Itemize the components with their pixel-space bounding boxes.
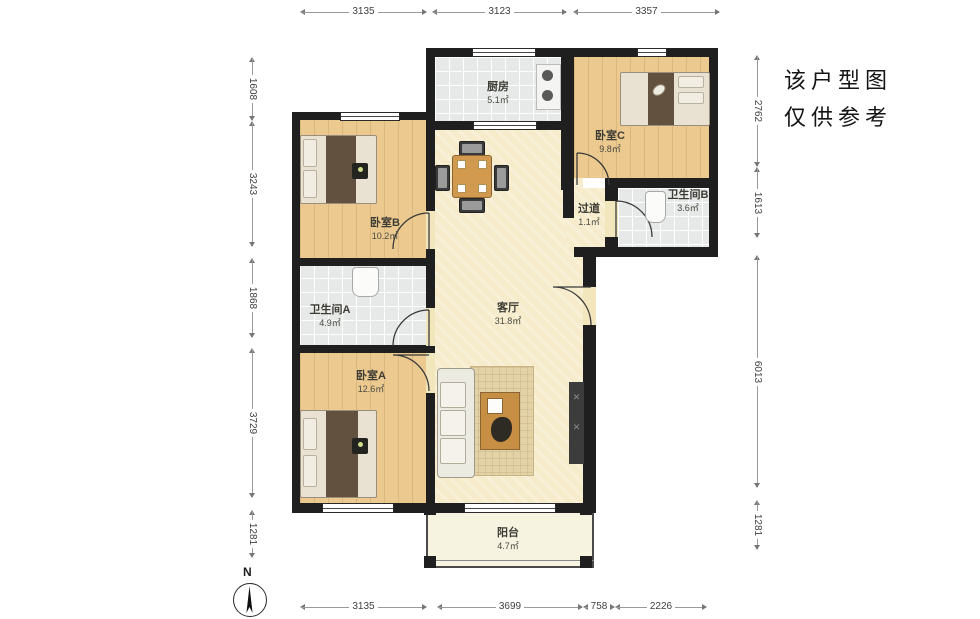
- stove-burner: [542, 70, 553, 81]
- dim-right-2: 1613: [751, 167, 763, 238]
- dim-bottom-3: 758: [583, 601, 615, 613]
- window-bedroom-a: [322, 503, 394, 513]
- dim-left-2: 3243: [246, 121, 258, 247]
- wall-bedroom-c-bottom: [605, 178, 709, 188]
- dim-bottom-1: 3135: [300, 601, 427, 613]
- dim-right-4: 1281: [751, 500, 763, 550]
- floorplan-scene: lianjia: [0, 0, 980, 619]
- balcony-post: [424, 556, 436, 568]
- plate: [457, 184, 466, 193]
- doorway-entrance: [583, 287, 596, 325]
- dining-chair: [494, 165, 509, 191]
- balcony-post: [580, 503, 592, 515]
- pillow: [678, 76, 704, 88]
- bed-bedroom-c-duvet: [648, 73, 674, 125]
- wall-outer-left: [292, 112, 300, 513]
- pillow: [303, 418, 317, 450]
- dim-top-2: 3123: [432, 6, 567, 18]
- doorway-bedroom-a: [426, 353, 435, 393]
- dim-right-1: 2762: [751, 55, 763, 167]
- balcony-post: [580, 556, 592, 568]
- dining-chair: [435, 165, 450, 191]
- compass-icon: [233, 583, 267, 617]
- stove-burner: [542, 90, 553, 101]
- wall-bathroom-b-bottom: [596, 247, 718, 257]
- dim-left-4: 3729: [246, 348, 258, 498]
- dining-chair: [459, 141, 485, 156]
- wall-bathroom-a-bottom: [292, 345, 433, 353]
- dim-bottom-4: 2226: [615, 601, 707, 613]
- dim-right-3: 6013: [751, 255, 763, 488]
- pillow: [678, 92, 704, 104]
- dining-chair: [459, 198, 485, 213]
- dim-left-3: 1868: [246, 258, 258, 338]
- compass-needle-icon: [244, 586, 255, 613]
- kitchen-sliding-door: [473, 121, 537, 130]
- pillow: [303, 170, 317, 198]
- sofa-cushion: [440, 438, 466, 464]
- tv-cabinet: ✕✕: [569, 382, 584, 464]
- dim-bottom-2: 3699: [437, 601, 583, 613]
- wall-center-vertical: [426, 48, 435, 513]
- wall-kitchen-right: [561, 48, 574, 190]
- window-kitchen: [472, 48, 536, 57]
- coffee-table-tray: [487, 398, 503, 414]
- pillow: [303, 139, 317, 167]
- nightstand-lamp: [352, 163, 368, 179]
- toilet-bathroom-a: [352, 267, 379, 297]
- plate: [457, 160, 466, 169]
- dim-top-3: 3357: [573, 6, 720, 18]
- wall-corridor-left: [563, 190, 574, 218]
- nightstand-lamp: [352, 438, 368, 454]
- pillow: [303, 455, 317, 487]
- balcony-post: [424, 503, 436, 515]
- plate: [478, 160, 487, 169]
- balcony-sliding-door: [464, 503, 556, 513]
- disclaimer-line-1: 该户型图: [784, 62, 892, 99]
- window-bedroom-c: [637, 48, 667, 57]
- sofa-cushion: [440, 410, 466, 436]
- disclaimer-note: 该户型图 仅供参考: [784, 62, 892, 136]
- bed-bedroom-a-duvet: [326, 411, 358, 497]
- toilet-bathroom-b: [645, 191, 666, 223]
- wall-bathroom-a-top: [292, 258, 433, 266]
- doorway-bathroom-b: [605, 201, 618, 237]
- window-bedroom-b: [340, 112, 400, 121]
- wall-outer-right: [709, 48, 718, 257]
- compass-north-label: N: [243, 565, 252, 579]
- sofa-cushion: [440, 382, 466, 408]
- doorway-bedroom-b: [426, 211, 435, 249]
- plate: [478, 184, 487, 193]
- dim-top-1: 3135: [300, 6, 427, 18]
- disclaimer-line-2: 仅供参考: [784, 99, 892, 136]
- balcony-railing-line: [426, 560, 594, 561]
- dim-left-1: 1608: [246, 57, 258, 121]
- doorway-bathroom-a: [426, 308, 435, 346]
- dim-left-5: 1281: [246, 510, 258, 558]
